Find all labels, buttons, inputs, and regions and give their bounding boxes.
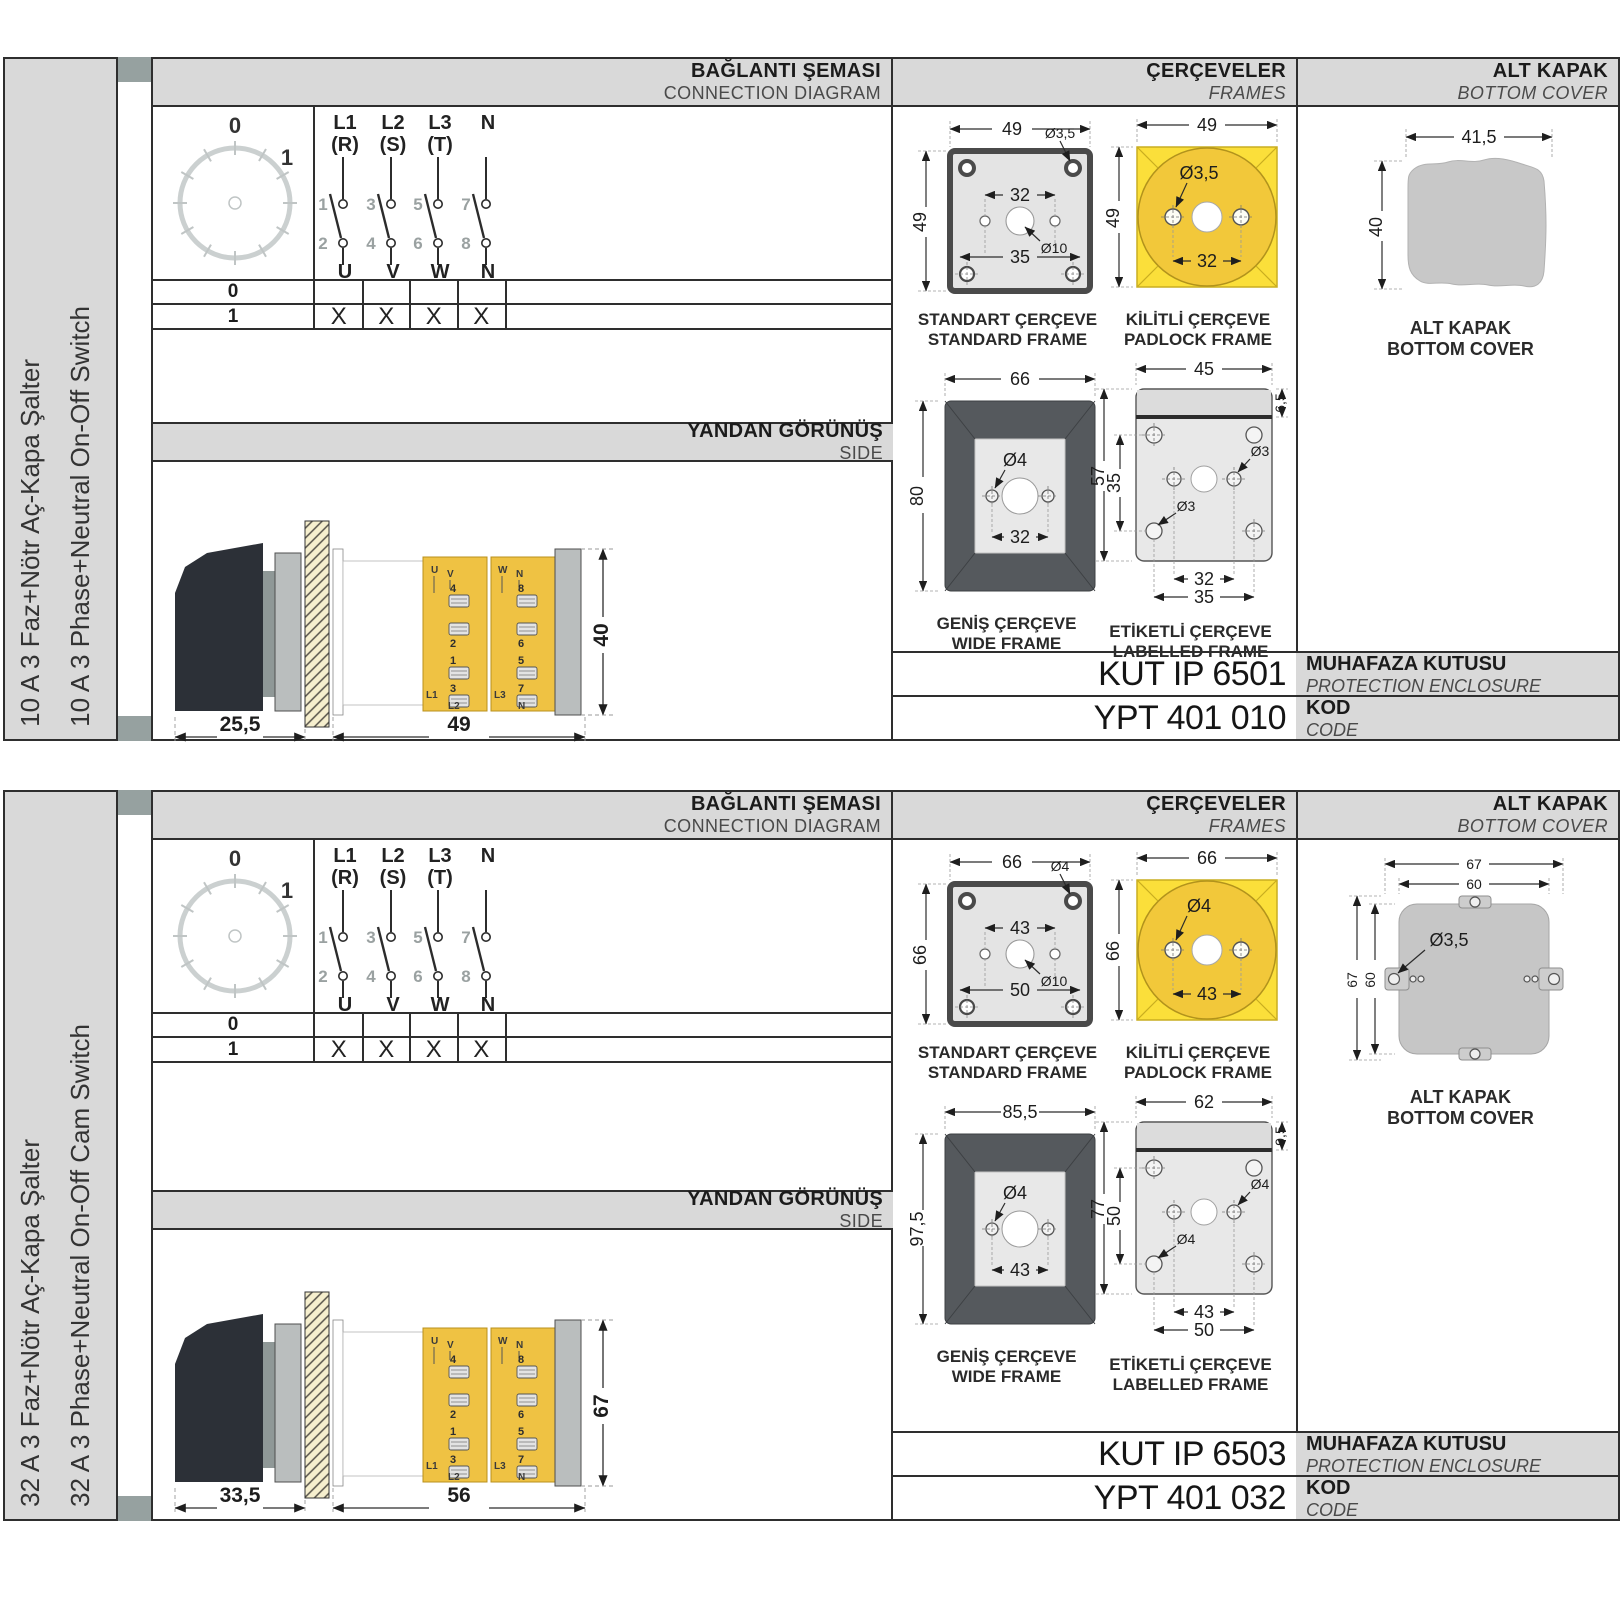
contact-number-bottom: 4 — [366, 234, 376, 253]
dim-corner-hole: Ø4 — [1050, 858, 1069, 874]
caption-tr: ETİKETLİ ÇERÇEVE — [1088, 622, 1293, 642]
enclosure-label-en: PROTECTION ENCLOSURE — [1306, 1456, 1618, 1477]
dial-position-0: 0 — [229, 846, 241, 871]
mark-cell — [315, 280, 363, 303]
dial-ring — [173, 874, 297, 998]
standard-frame-drawing: 66 Ø4 66 43 Ø10 50 — [908, 844, 1108, 1036]
caption-tr: ETİKETLİ ÇERÇEVE — [1088, 1355, 1293, 1375]
header-cover-en: BOTTOM COVER — [1458, 816, 1608, 837]
product-title-turkish: 32 A 3 Faz+Nötr Aç-Kapa Şalter — [15, 1139, 46, 1507]
terminal-number: 7 — [518, 683, 524, 695]
standard-frame-caption: STANDART ÇERÇEVE STANDARD FRAME — [905, 310, 1110, 350]
bottom-cover-drawing: 41,5 40 — [1336, 119, 1586, 311]
dim-hole2: Ø3 — [1177, 498, 1196, 514]
terminal-number: 1 — [450, 655, 456, 667]
pole-label: L1 — [333, 112, 356, 134]
dim-outer-horizontal: 35 — [1194, 587, 1214, 607]
spine-square-bottom — [118, 716, 151, 741]
terminal-number: 4 — [450, 1354, 457, 1366]
section-panel: BAĞLANTI ŞEMASI CONNECTION DIAGRAM ÇERÇE… — [151, 57, 1620, 741]
enclosure-label-en: PROTECTION ENCLOSURE — [1306, 676, 1618, 697]
terminal-number: 8 — [518, 583, 524, 595]
pole-n: N 7 8 N — [461, 845, 495, 1012]
terminal-label: L1 — [426, 1461, 438, 1472]
pole-l3: L3 (T) 5 6 W — [413, 845, 453, 1012]
table-row1-marks: X X X X — [315, 1038, 505, 1061]
header-frames-tr: ÇERÇEVELER — [1146, 793, 1286, 816]
caption-en: PADLOCK FRAME — [1103, 330, 1293, 350]
dim-inner-horizontal: 32 — [1194, 569, 1214, 589]
wide-frame-drawing: 66 80 Ø4 32 — [909, 365, 1104, 607]
dim-strip: 9,5 — [1272, 1126, 1288, 1146]
column-divider-cover — [1296, 59, 1298, 739]
dial-ring — [173, 141, 297, 265]
bottom-cover-caption: ALT KAPAK BOTTOM COVER — [1313, 318, 1608, 360]
dim-center-hole: Ø10 — [1040, 973, 1067, 989]
pole-label2: (T) — [427, 867, 453, 889]
dim-width: 49 — [1001, 119, 1021, 139]
dim-inner-horizontal: 43 — [1194, 1302, 1214, 1322]
dial-position-0: 0 — [229, 113, 241, 138]
labelled-frame-caption: ETİKETLİ ÇERÇEVE LABELLED FRAME — [1088, 1355, 1293, 1395]
catalog-page: 10 A 3 Faz+Nötr Aç-Kapa Şalter 10 A 3 Ph… — [0, 0, 1623, 1623]
product-code-row: YPT 401 010 KOD CODE — [891, 695, 1618, 739]
bottom-cover-block: 67 60 67 60 Ø3,5 ALT KAPAK BOTTOM COVER — [1313, 852, 1608, 1129]
pole-output: W — [431, 994, 450, 1012]
spine-column — [118, 57, 151, 741]
bottom-cover-drawing: 67 60 67 60 Ø3,5 — [1321, 852, 1601, 1080]
dim-height: 49 — [910, 212, 930, 232]
pole-output: V — [386, 261, 400, 279]
mark-cell — [458, 1013, 506, 1036]
wide-frame-drawing: 85,5 97,5 Ø4 43 — [909, 1098, 1104, 1340]
pole-symbol — [473, 157, 490, 265]
contact-number-top: 3 — [366, 195, 375, 214]
dim-inner-vertical: 50 — [1104, 1206, 1124, 1226]
product-title-english: 32 A 3 Phase+Neutral On-Off Cam Switch — [65, 1024, 96, 1507]
pole-l3: L3 (T) 5 6 W — [413, 112, 453, 279]
spine-square-top — [118, 57, 151, 82]
pole-symbol — [330, 157, 347, 265]
table-row1-label: 1 — [153, 305, 313, 328]
header-band: BAĞLANTI ŞEMASI CONNECTION DIAGRAM ÇERÇE… — [153, 59, 1618, 107]
pole-label: L3 — [428, 845, 451, 867]
product-section: 10 A 3 Faz+Nötr Aç-Kapa Şalter 10 A 3 Ph… — [3, 57, 1620, 741]
pole-label2: (S) — [380, 867, 407, 889]
spine-square-bottom — [118, 1496, 151, 1521]
product-code-label: KOD CODE — [1296, 697, 1618, 739]
dim-height: 66 — [910, 945, 930, 965]
pole-l1: L1 (R) 1 2 U — [318, 112, 359, 279]
header-frames: ÇERÇEVELER FRAMES — [891, 792, 1296, 838]
caption-tr: GENİŞ ÇERÇEVE — [909, 1347, 1104, 1367]
pole-symbol — [473, 890, 490, 998]
mark-cell — [410, 1013, 458, 1036]
enclosure-code-row: KUT IP 6501 MUHAFAZA KUTUSU PROTECTION E… — [891, 651, 1618, 695]
contact-number-bottom: 8 — [461, 967, 470, 986]
cover-shape — [1408, 158, 1546, 286]
code-label-en: CODE — [1306, 1500, 1618, 1521]
pole-output: N — [481, 261, 495, 279]
contact-number-top: 1 — [318, 928, 327, 947]
contact-number-top: 5 — [413, 928, 422, 947]
enclosure-code-label: MUHAFAZA KUTUSU PROTECTION ENCLOSURE — [1296, 1433, 1618, 1475]
terminal-number: 7 — [518, 1454, 524, 1466]
terminal-number: 5 — [518, 1426, 524, 1438]
pole-label: L2 — [381, 112, 404, 134]
panel-hatch — [305, 1292, 329, 1498]
dim-hole-spacing: 32 — [1010, 527, 1030, 547]
header-cover-tr: ALT KAPAK — [1493, 793, 1608, 816]
dim-height: 49 — [1105, 208, 1123, 228]
contact-number-top: 5 — [413, 195, 422, 214]
side-view-band: YANDAN GÖRÜNÜŞ SIDE — [153, 422, 893, 462]
pole-l2: L2 (S) 3 4 V — [366, 845, 406, 1012]
header-frames-en: FRAMES — [1209, 83, 1286, 104]
dial-position-1: 1 — [281, 145, 293, 170]
labelled-frame-block: 62 9,5 77 50 Ø4 Ø4 43 50 ETİKETLİ ÇERÇEV… — [1088, 1088, 1293, 1395]
terminal-number: 3 — [450, 683, 456, 695]
dim-width-inner: 60 — [1466, 876, 1482, 892]
contact-number-bottom: 4 — [366, 967, 376, 986]
mark-cell: X — [363, 305, 411, 328]
pole-symbol — [425, 157, 442, 265]
dim-hole: Ø4 — [1003, 1183, 1027, 1203]
handle — [175, 1314, 263, 1482]
labelled-frame-block: 45 6,5 57 35 Ø3 Ø3 32 35 ETİKETLİ ÇERÇEV… — [1088, 355, 1293, 662]
terminal-label: U — [431, 1336, 438, 1347]
padlock-frame-block: 66 66 Ø4 43 KİLİTLİ ÇERÇEVE PADLOCK FRAM… — [1103, 844, 1293, 1083]
dim-width: 66 — [1197, 848, 1217, 868]
caption-en: PADLOCK FRAME — [1103, 1063, 1293, 1083]
pole-output: V — [386, 994, 400, 1012]
mark-cell: X — [315, 305, 363, 328]
pole-output: U — [338, 994, 352, 1012]
switch-position-dial: 0 1 — [153, 107, 313, 279]
product-section: 32 A 3 Faz+Nötr Aç-Kapa Şalter 32 A 3 Ph… — [3, 790, 1620, 1521]
caption-en: BOTTOM COVER — [1313, 1108, 1608, 1129]
padlock-frame-caption: KİLİTLİ ÇERÇEVE PADLOCK FRAME — [1103, 1043, 1293, 1083]
terminal-number: 4 — [450, 583, 457, 595]
table-divider — [505, 1012, 507, 1063]
pole-label2: (R) — [331, 867, 359, 889]
product-title-turkish: 10 A 3 Faz+Nötr Aç-Kapa Şalter — [15, 359, 46, 727]
mark-cell — [315, 1013, 363, 1036]
labelled-frame-drawing: 62 9,5 77 50 Ø4 Ø4 43 50 — [1088, 1088, 1293, 1348]
terminal-label: N — [516, 569, 523, 580]
dial-cell: 0 1 — [153, 840, 315, 1012]
product-title-english: 10 A 3 Phase+Neutral On-Off Switch — [65, 306, 96, 727]
pole-symbol — [425, 890, 442, 998]
terminal-label: L2 — [448, 701, 460, 712]
padlock-frame-block: 49 49 Ø3,5 32 KİLİTLİ ÇERÇEVE PADLOCK FR… — [1103, 111, 1293, 350]
contact-number-top: 7 — [461, 928, 470, 947]
terminal-label: N — [516, 1340, 523, 1351]
dim-bottom-spacing: 50 — [1009, 980, 1029, 1000]
caption-tr: KİLİTLİ ÇERÇEVE — [1103, 310, 1293, 330]
pole-label2: (T) — [427, 134, 453, 156]
pole-output: W — [431, 261, 450, 279]
dim-body-depth: 49 — [447, 713, 470, 736]
caption-en: BOTTOM COVER — [1313, 339, 1608, 360]
product-code-label: KOD CODE — [1296, 1477, 1618, 1519]
dim-top: 45 — [1194, 359, 1214, 379]
dim-hole: Ø4 — [1003, 450, 1027, 470]
mark-cell — [363, 1013, 411, 1036]
section-panel: BAĞLANTI ŞEMASI CONNECTION DIAGRAM ÇERÇE… — [151, 790, 1620, 1521]
enclosure-code-label: MUHAFAZA KUTUSU PROTECTION ENCLOSURE — [1296, 653, 1618, 695]
code-label-en: CODE — [1306, 720, 1618, 741]
padlock-frame-drawing: 66 66 Ø4 43 — [1105, 844, 1291, 1036]
terminal-label: N — [518, 1472, 525, 1483]
mark-cell: X — [315, 1038, 363, 1061]
header-connection-tr: BAĞLANTI ŞEMASI — [691, 793, 881, 816]
pole-output: U — [338, 261, 352, 279]
product-title-bar: 10 A 3 Faz+Nötr Aç-Kapa Şalter 10 A 3 Ph… — [3, 57, 118, 741]
contact-number-bottom: 8 — [461, 234, 470, 253]
mark-cell — [363, 280, 411, 303]
dim-hole-spacing: 43 — [1197, 984, 1217, 1004]
dim-width: 66 — [1010, 369, 1030, 389]
dim-height-inner: 60 — [1362, 972, 1378, 988]
dim-handle-depth: 33,5 — [220, 1484, 261, 1507]
wide-frame-caption: GENİŞ ÇERÇEVE WIDE FRAME — [909, 1347, 1104, 1387]
caption-tr: GENİŞ ÇERÇEVE — [909, 614, 1104, 634]
dim-hole-spacing: 32 — [1009, 185, 1029, 205]
terminal-number: 1 — [450, 1426, 456, 1438]
pole-output: N — [481, 994, 495, 1012]
dim-tab-hole: Ø3,5 — [1429, 930, 1468, 950]
mark-cell: X — [410, 1038, 458, 1061]
dim-height: 97,5 — [909, 1211, 927, 1246]
mark-cell — [410, 280, 458, 303]
header-cover-tr: ALT KAPAK — [1493, 60, 1608, 83]
terminal-number: 6 — [518, 638, 524, 650]
mark-cell: X — [410, 305, 458, 328]
pole-label: L2 — [381, 845, 404, 867]
side-view-en: SIDE — [839, 1211, 883, 1232]
header-cover-en: BOTTOM COVER — [1458, 83, 1608, 104]
table-row0-label: 0 — [153, 1013, 313, 1036]
dim-corner-hole: Ø3,5 — [1044, 125, 1075, 141]
enclosure-code-row: KUT IP 6503 MUHAFAZA KUTUSU PROTECTION E… — [891, 1431, 1618, 1475]
wide-frame-block: 66 80 Ø4 32 GENİŞ ÇERÇEVE WIDE FRAME — [909, 365, 1104, 654]
pole-l2: L2 (S) 3 4 V — [366, 112, 406, 279]
mark-cell — [458, 280, 506, 303]
side-view-en: SIDE — [839, 443, 883, 464]
terminal-label: V — [447, 569, 454, 580]
standard-frame-block: 66 Ø4 66 43 Ø10 50 STANDART ÇERÇEVE STAN… — [905, 844, 1110, 1083]
dim-outer-horizontal: 50 — [1194, 1320, 1214, 1340]
pole-label2: (R) — [331, 134, 359, 156]
product-code-value: YPT 401 032 — [891, 1477, 1296, 1519]
header-frames-en: FRAMES — [1209, 816, 1286, 837]
bottom-cover-caption: ALT KAPAK BOTTOM COVER — [1313, 1087, 1608, 1129]
contact-number-bottom: 2 — [318, 234, 327, 253]
product-code-row: YPT 401 032 KOD CODE — [891, 1475, 1618, 1519]
caption-tr: ALT KAPAK — [1313, 318, 1608, 339]
pole-label: N — [481, 112, 495, 134]
dim-hole1: Ø4 — [1251, 1176, 1270, 1192]
side-view-drawing: U V 4 2 1 3 L1 L2 W N 8 — [167, 467, 647, 745]
terminal-number: 2 — [450, 1409, 456, 1421]
dim-height: 40 — [1366, 217, 1386, 237]
mark-cell: X — [458, 305, 506, 328]
terminal-label: L1 — [426, 690, 438, 701]
header-bottom-cover: ALT KAPAK BOTTOM COVER — [1296, 792, 1618, 838]
terminal-number: 3 — [450, 1454, 456, 1466]
header-connection-diagram: BAĞLANTI ŞEMASI CONNECTION DIAGRAM — [153, 59, 891, 105]
dim-width-outer: 67 — [1466, 856, 1482, 872]
side-view-tr: YANDAN GÖRÜNÜŞ — [687, 420, 883, 443]
dim-height: 66 — [1105, 941, 1123, 961]
header-frames-tr: ÇERÇEVELER — [1146, 60, 1286, 83]
terminal-number: 8 — [518, 1354, 524, 1366]
mark-cell: X — [458, 1038, 506, 1061]
header-band: BAĞLANTI ŞEMASI CONNECTION DIAGRAM ÇERÇE… — [153, 792, 1618, 840]
caption-en: STANDARD FRAME — [905, 330, 1110, 350]
header-connection-en: CONNECTION DIAGRAM — [664, 83, 881, 104]
dim-strip: 6,5 — [1272, 393, 1288, 413]
contact-number-top: 3 — [366, 928, 375, 947]
terminal-label: L3 — [494, 1461, 506, 1472]
column-divider-cover — [1296, 792, 1298, 1519]
table-divider — [505, 279, 507, 330]
table-row1-label: 1 — [153, 1038, 313, 1061]
code-label-tr: KOD — [1306, 1477, 1618, 1500]
contact-number-bottom: 2 — [318, 967, 327, 986]
dim-height-outer: 67 — [1344, 972, 1360, 988]
terminal-label: L3 — [494, 690, 506, 701]
dim-hole-spacing: 32 — [1197, 251, 1217, 271]
terminal-number: 6 — [518, 1409, 524, 1421]
panel-hatch — [305, 521, 329, 727]
pole-label2: (S) — [380, 134, 407, 156]
standard-frame-block: 49 Ø3,5 49 32 Ø10 35 STANDART ÇERÇEVE ST… — [905, 111, 1110, 350]
terminal-label: L2 — [448, 1472, 460, 1483]
spine-column — [118, 790, 151, 1521]
dim-width: 49 — [1197, 115, 1217, 135]
product-title-bar: 32 A 3 Faz+Nötr Aç-Kapa Şalter 32 A 3 Ph… — [3, 790, 118, 1521]
padlock-frame-drawing: 49 49 Ø3,5 32 — [1105, 111, 1291, 303]
header-connection-tr: BAĞLANTI ŞEMASI — [691, 60, 881, 83]
spine-square-top — [118, 790, 151, 815]
handle — [175, 543, 263, 711]
caption-tr: KİLİTLİ ÇERÇEVE — [1103, 1043, 1293, 1063]
table-row1-marks: X X X X — [315, 305, 505, 328]
dim-width: 85,5 — [1002, 1102, 1037, 1122]
header-connection-en: CONNECTION DIAGRAM — [664, 816, 881, 837]
pole-symbol — [330, 890, 347, 998]
pole-symbol — [378, 890, 395, 998]
pole-symbol — [378, 157, 395, 265]
dim-width: 66 — [1001, 852, 1021, 872]
switch-poles-diagram: L1 (R) 1 2 U L2 (S) 3 — [315, 107, 893, 279]
wide-frame-block: 85,5 97,5 Ø4 43 GENİŞ ÇERÇEVE WIDE FRAME — [909, 1098, 1104, 1387]
dim-body-height: 40 — [590, 623, 613, 646]
terminal-label: W — [498, 565, 508, 576]
pole-l1: L1 (R) 1 2 U — [318, 845, 359, 1012]
enclosure-code-value: KUT IP 6501 — [891, 653, 1296, 695]
wide-frame-caption: GENİŞ ÇERÇEVE WIDE FRAME — [909, 614, 1104, 654]
enclosure-code-value: KUT IP 6503 — [891, 1433, 1296, 1475]
header-connection-diagram: BAĞLANTI ŞEMASI CONNECTION DIAGRAM — [153, 792, 891, 838]
terminal-number: 5 — [518, 655, 524, 667]
caption-en: STANDARD FRAME — [905, 1063, 1110, 1083]
enclosure-label-tr: MUHAFAZA KUTUSU — [1306, 653, 1618, 676]
dim-handle-depth: 25,5 — [220, 713, 261, 736]
enclosure-label-tr: MUHAFAZA KUTUSU — [1306, 1433, 1618, 1456]
switch-poles-diagram: L1 (R) 1 2 U L2 (S) 3 — [315, 840, 893, 1012]
caption-tr: ALT KAPAK — [1313, 1087, 1608, 1108]
dim-width: 41,5 — [1461, 127, 1496, 147]
padlock-frame-caption: KİLİTLİ ÇERÇEVE PADLOCK FRAME — [1103, 310, 1293, 350]
bottom-cover-block: 41,5 40 — [1313, 119, 1608, 360]
pole-label: L3 — [428, 112, 451, 134]
standard-frame-drawing: 49 Ø3,5 49 32 Ø10 35 — [908, 111, 1108, 303]
side-view-drawing: U V 4 2 1 3 L1 L2 W N 8 — [167, 1238, 647, 1516]
dial-cell: 0 1 — [153, 107, 315, 279]
terminal-label: N — [518, 701, 525, 712]
dial-position-1: 1 — [281, 878, 293, 903]
mark-cell: X — [363, 1038, 411, 1061]
contact-number-top: 1 — [318, 195, 327, 214]
dim-hole1: Ø3 — [1251, 443, 1270, 459]
caption-tr: STANDART ÇERÇEVE — [905, 1043, 1110, 1063]
terminal-label: U — [431, 565, 438, 576]
product-code-value: YPT 401 010 — [891, 697, 1296, 739]
side-view-band: YANDAN GÖRÜNÜŞ SIDE — [153, 1190, 893, 1230]
dim-hole: Ø3,5 — [1179, 163, 1218, 183]
dim-inner-vertical: 35 — [1104, 473, 1124, 493]
caption-en: WIDE FRAME — [909, 1367, 1104, 1387]
terminal-number: 2 — [450, 638, 456, 650]
side-view-tr: YANDAN GÖRÜNÜŞ — [687, 1188, 883, 1211]
caption-en: LABELLED FRAME — [1088, 1375, 1293, 1395]
header-frames: ÇERÇEVELER FRAMES — [891, 59, 1296, 105]
dim-body-height: 67 — [590, 1394, 613, 1417]
dim-center-hole: Ø10 — [1040, 240, 1067, 256]
standard-frame-caption: STANDART ÇERÇEVE STANDARD FRAME — [905, 1043, 1110, 1083]
table-row0-marks — [315, 280, 505, 303]
dim-bottom-spacing: 35 — [1009, 247, 1029, 267]
pole-label: L1 — [333, 845, 356, 867]
dim-hole-spacing: 43 — [1009, 918, 1029, 938]
header-bottom-cover: ALT KAPAK BOTTOM COVER — [1296, 59, 1618, 105]
pole-label: N — [481, 845, 495, 867]
contact-number-top: 7 — [461, 195, 470, 214]
dim-height: 80 — [909, 486, 927, 506]
caption-tr: STANDART ÇERÇEVE — [905, 310, 1110, 330]
contact-number-bottom: 6 — [413, 234, 422, 253]
table-row0-marks — [315, 1013, 505, 1036]
table-row0-label: 0 — [153, 280, 313, 303]
pole-n: N 7 8 N — [461, 112, 495, 279]
switch-position-dial: 0 1 — [153, 840, 313, 1012]
dim-hole2: Ø4 — [1177, 1231, 1196, 1247]
terminal-label: W — [498, 1336, 508, 1347]
table-line — [153, 328, 893, 330]
terminal-label: V — [447, 1340, 454, 1351]
table-line — [153, 1061, 893, 1063]
dim-top: 62 — [1194, 1092, 1214, 1112]
dim-hole: Ø4 — [1187, 896, 1211, 916]
labelled-frame-drawing: 45 6,5 57 35 Ø3 Ø3 32 35 — [1088, 355, 1293, 615]
code-label-tr: KOD — [1306, 697, 1618, 720]
dim-hole-spacing: 43 — [1010, 1260, 1030, 1280]
contact-number-bottom: 6 — [413, 967, 422, 986]
dim-body-depth: 56 — [447, 1484, 470, 1507]
